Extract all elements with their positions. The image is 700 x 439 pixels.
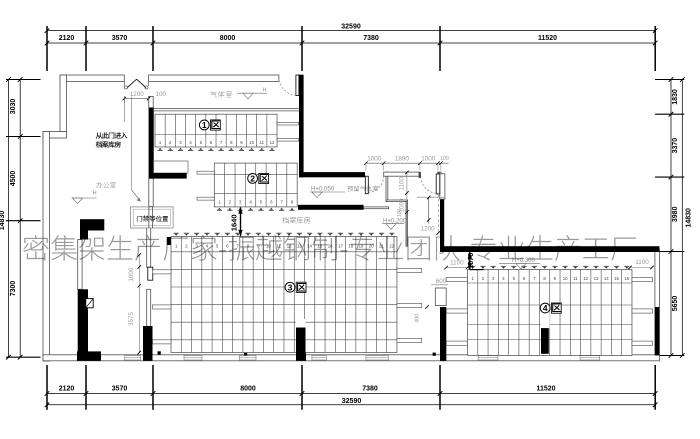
svg-text:5650: 5650 [672, 296, 679, 312]
svg-text:1890: 1890 [395, 156, 410, 163]
svg-text:1000: 1000 [367, 156, 382, 163]
svg-text:100: 100 [440, 156, 449, 162]
svg-text:32590: 32590 [342, 398, 362, 405]
svg-text:10: 10 [563, 276, 568, 281]
svg-text:14830: 14830 [686, 208, 693, 228]
svg-text:档案库房: 档案库房 [96, 139, 122, 149]
svg-text:档案库房: 档案库房 [282, 216, 311, 226]
svg-text:8000: 8000 [220, 35, 236, 42]
svg-text:8000: 8000 [240, 386, 256, 393]
svg-text:2: 2 [250, 174, 255, 184]
svg-text:4: 4 [543, 303, 548, 313]
svg-text:1000: 1000 [421, 156, 436, 163]
svg-text:区: 区 [551, 300, 561, 315]
svg-text:1200: 1200 [130, 91, 145, 98]
svg-text:H+0.200: H+0.200 [383, 217, 407, 224]
svg-text:区: 区 [259, 170, 269, 185]
svg-text:14830: 14830 [0, 211, 6, 231]
svg-text:H: H [263, 88, 267, 94]
svg-text:1830: 1830 [672, 89, 679, 105]
svg-text:16: 16 [624, 276, 629, 281]
svg-text:2120: 2120 [59, 386, 75, 393]
svg-text:10: 10 [249, 140, 254, 145]
svg-text:2120: 2120 [59, 35, 75, 42]
svg-text:H: H [93, 191, 97, 197]
svg-text:7380: 7380 [363, 35, 379, 42]
svg-text:3370: 3370 [672, 138, 679, 154]
svg-text:密集架生产厂家-振越钢制-专业团队-专业生产工厂: 密集架生产厂家-振越钢制-专业团队-专业生产工厂 [22, 228, 638, 268]
svg-text:1100: 1100 [398, 176, 405, 190]
svg-text:3570: 3570 [112, 386, 128, 393]
svg-text:7380: 7380 [362, 386, 378, 393]
svg-text:3570: 3570 [112, 35, 128, 42]
svg-text:7300: 7300 [10, 281, 17, 297]
svg-text:3: 3 [288, 282, 293, 292]
svg-text:区: 区 [296, 279, 306, 294]
svg-text:3030: 3030 [10, 99, 17, 115]
svg-text:11: 11 [573, 276, 578, 281]
svg-text:13: 13 [594, 276, 599, 281]
svg-text:100: 100 [156, 91, 167, 98]
svg-text:12: 12 [583, 276, 588, 281]
svg-text:4500: 4500 [10, 171, 17, 187]
svg-text:H+0.050: H+0.050 [311, 186, 335, 193]
svg-text:3980: 3980 [672, 206, 679, 222]
svg-text:1000: 1000 [128, 267, 135, 282]
svg-text:32590: 32590 [341, 23, 361, 30]
svg-text:600: 600 [436, 278, 447, 285]
svg-text:15: 15 [614, 276, 619, 281]
svg-text:3575: 3575 [128, 312, 135, 327]
svg-text:预留气体室: 预留气体室 [347, 184, 379, 193]
svg-text:12: 12 [270, 140, 275, 145]
svg-text:办公室: 办公室 [96, 180, 117, 190]
svg-text:400: 400 [415, 314, 421, 323]
svg-text:11520: 11520 [538, 35, 557, 42]
svg-text:100: 100 [397, 209, 403, 218]
svg-text:区: 区 [210, 117, 220, 132]
svg-text:14: 14 [604, 276, 609, 281]
svg-text:11520: 11520 [536, 386, 555, 393]
svg-text:1: 1 [202, 120, 207, 130]
svg-text:气体室: 气体室 [210, 90, 233, 100]
svg-text:11: 11 [260, 140, 265, 145]
